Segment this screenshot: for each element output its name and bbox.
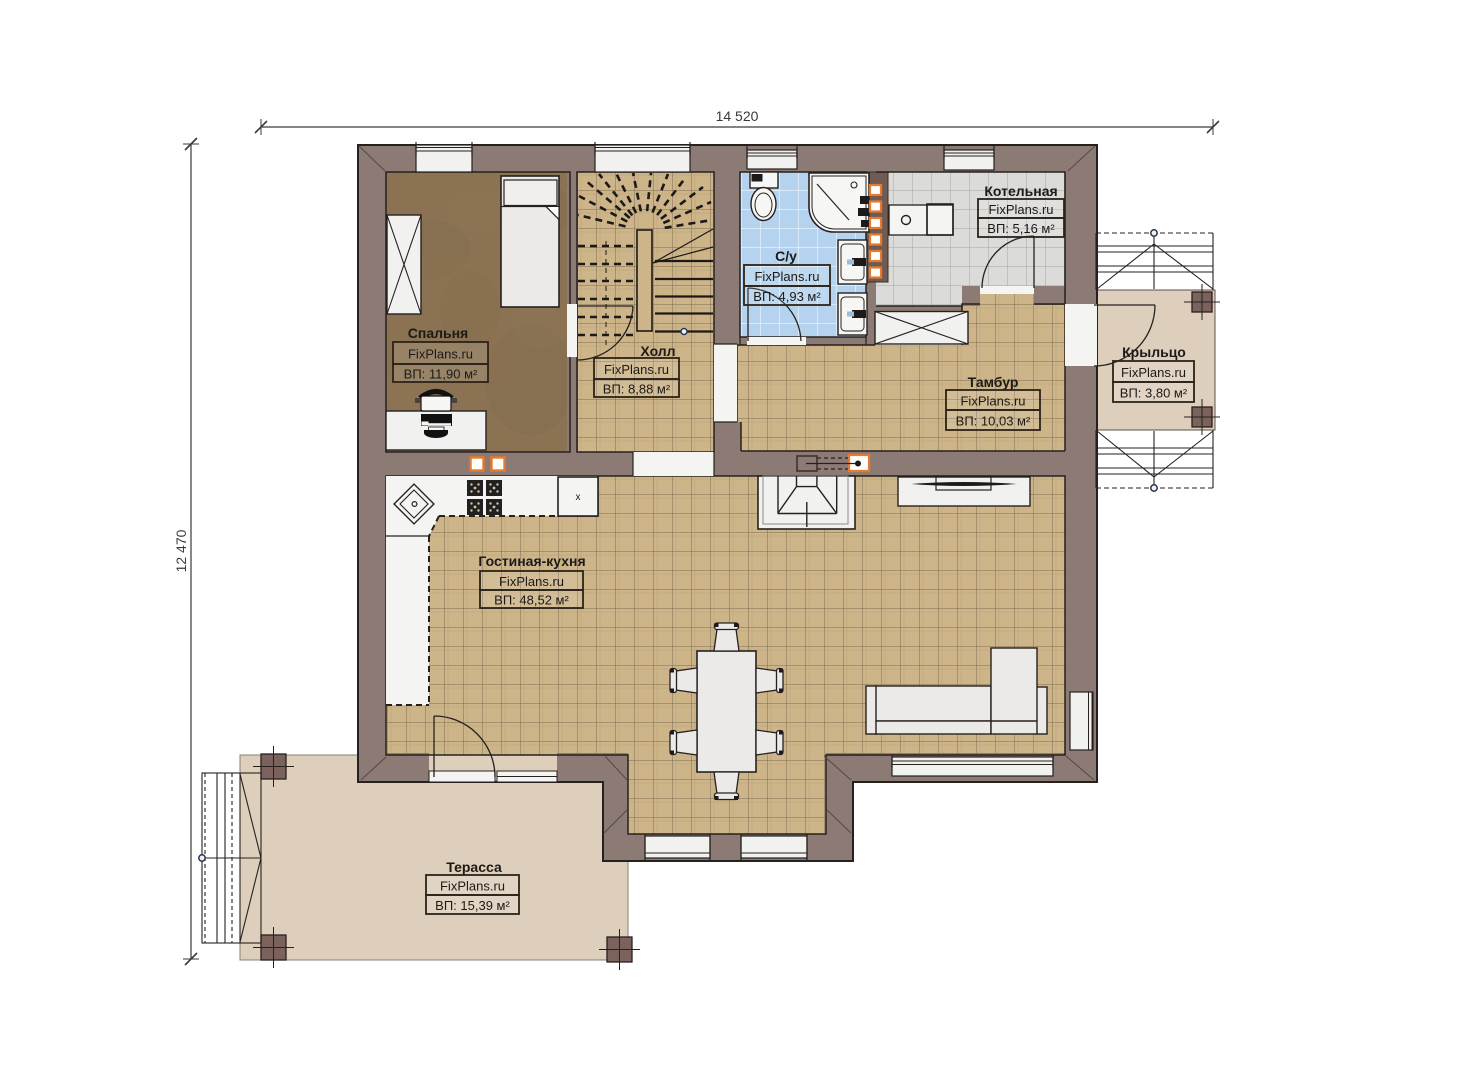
svg-text:ВП: 8,88 м²: ВП: 8,88 м² xyxy=(603,382,671,397)
svg-text:FixPlans.ru: FixPlans.ru xyxy=(408,347,473,362)
svg-text:Крыльцо: Крыльцо xyxy=(1122,344,1186,360)
svg-text:ВП: 5,16 м²: ВП: 5,16 м² xyxy=(987,221,1055,236)
svg-text:FixPlans.ru: FixPlans.ru xyxy=(499,574,564,589)
svg-text:FixPlans.ru: FixPlans.ru xyxy=(440,879,505,894)
svg-text:С/у: С/у xyxy=(775,248,797,264)
svg-text:FixPlans.ru: FixPlans.ru xyxy=(604,362,669,377)
svg-text:Холл: Холл xyxy=(640,343,675,359)
svg-text:ВП: 3,80 м²: ВП: 3,80 м² xyxy=(1120,386,1188,401)
svg-text:Тамбур: Тамбур xyxy=(968,374,1019,390)
svg-text:12 470: 12 470 xyxy=(173,529,189,572)
svg-text:Гостиная-кухня: Гостиная-кухня xyxy=(478,553,585,569)
svg-text:Спальня: Спальня xyxy=(408,325,468,341)
svg-text:ВП: 11,90 м²: ВП: 11,90 м² xyxy=(404,367,478,382)
svg-text:ВП: 15,39 м²: ВП: 15,39 м² xyxy=(435,898,510,913)
svg-text:FixPlans.ru: FixPlans.ru xyxy=(960,394,1025,409)
svg-text:ВП: 10,03 м²: ВП: 10,03 м² xyxy=(956,414,1031,429)
svg-text:Терасса: Терасса xyxy=(446,859,502,875)
svg-text:14 520: 14 520 xyxy=(716,108,759,124)
svg-text:x: x xyxy=(576,492,581,503)
svg-text:ВП: 48,52 м²: ВП: 48,52 м² xyxy=(494,593,569,608)
svg-text:FixPlans.ru: FixPlans.ru xyxy=(988,202,1053,217)
svg-text:FixPlans.ru: FixPlans.ru xyxy=(754,269,819,284)
svg-text:FixPlans.ru: FixPlans.ru xyxy=(1121,365,1186,380)
svg-text:ВП: 4,93 м²: ВП: 4,93 м² xyxy=(753,289,821,304)
svg-text:Котельная: Котельная xyxy=(984,183,1057,199)
